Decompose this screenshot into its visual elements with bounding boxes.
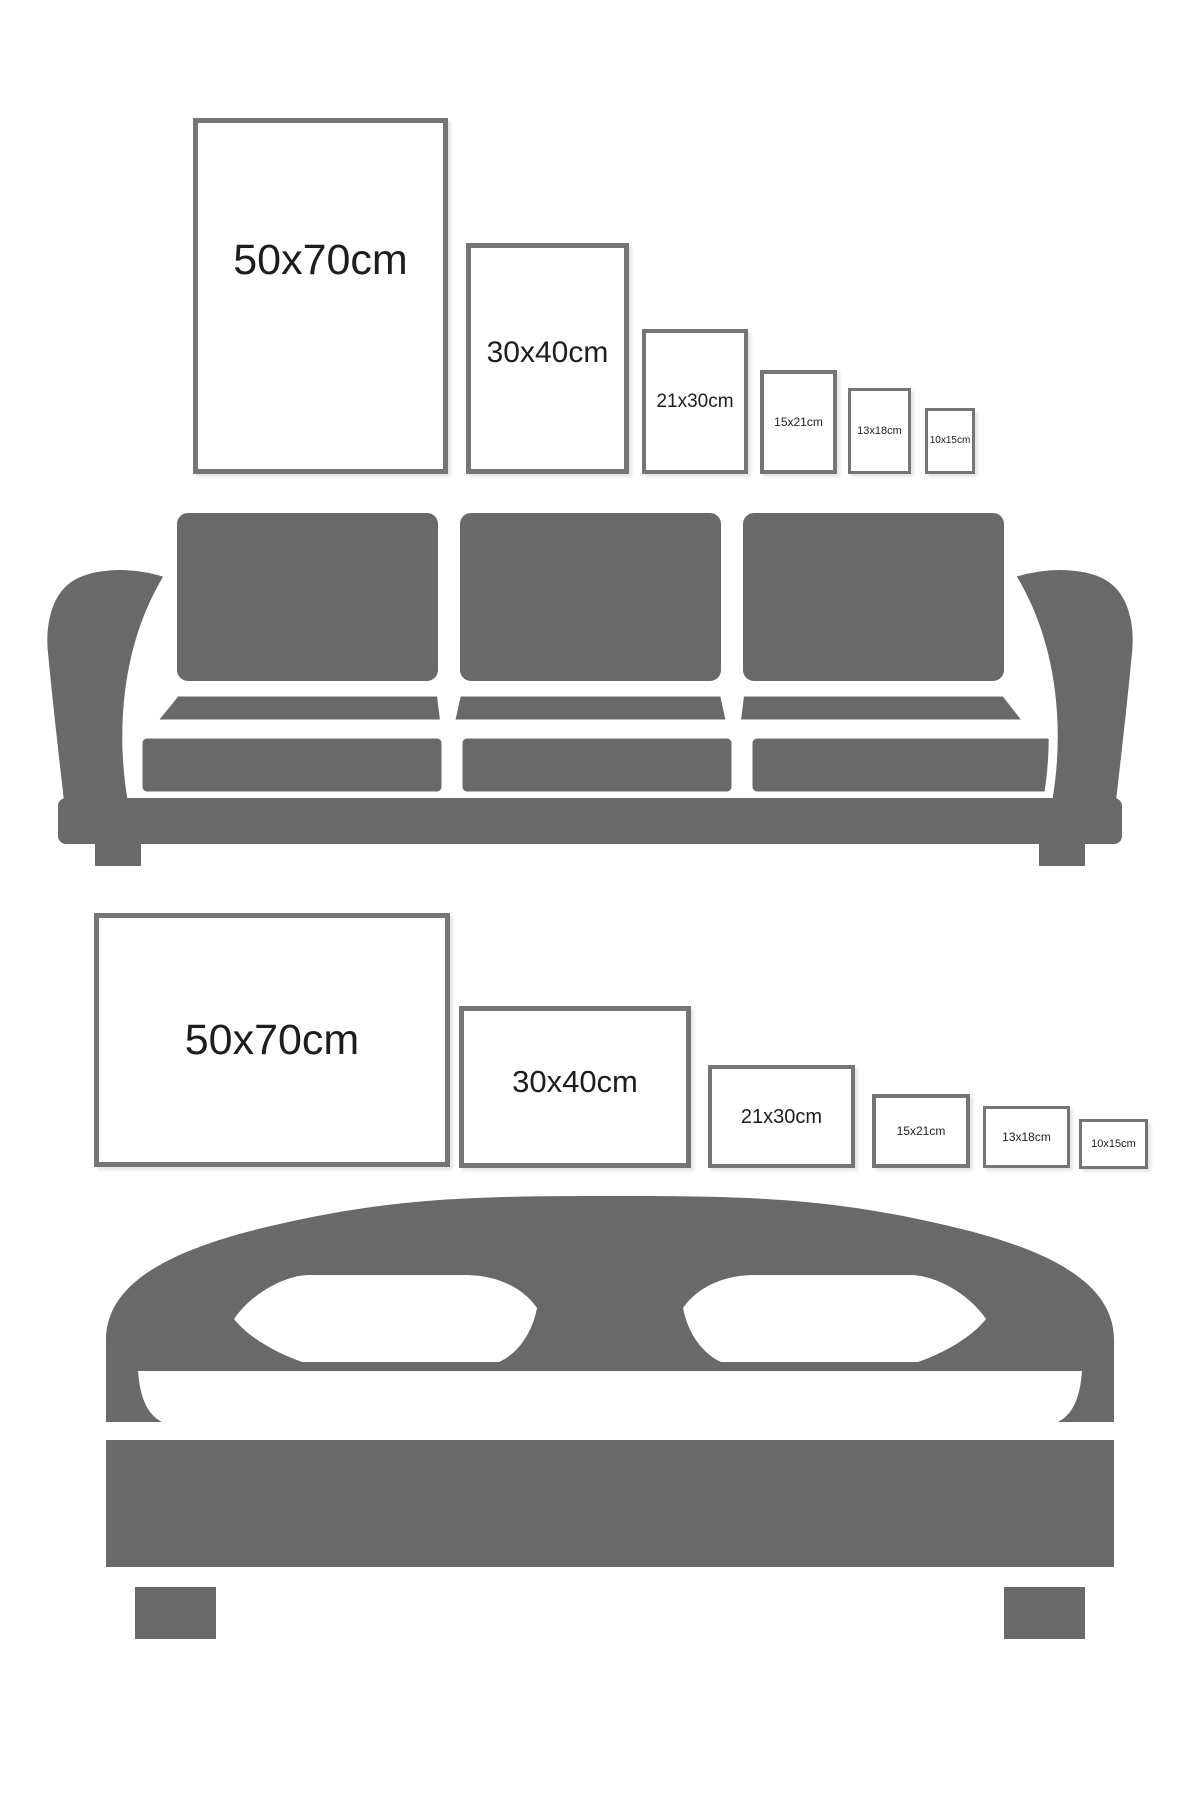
frame-21x30-portrait: 21x30cm bbox=[642, 329, 748, 474]
bed-pillow-right bbox=[683, 1275, 986, 1362]
frame-15x21-portrait: 15x21cm bbox=[760, 370, 837, 474]
frame-30x40-landscape: 30x40cm bbox=[459, 1006, 691, 1168]
frame-21x30-landscape: 21x30cm bbox=[708, 1065, 855, 1168]
bed-foot-right bbox=[1004, 1587, 1085, 1639]
frame-50x70-portrait: 50x70cm bbox=[193, 118, 448, 474]
frame-15x21-landscape: 15x21cm bbox=[872, 1094, 970, 1168]
frame-size-label: 50x70cm bbox=[233, 239, 407, 282]
sofa-seat-deck-middle bbox=[450, 692, 731, 724]
bed-mattress-corner-left bbox=[138, 1371, 162, 1422]
frame-10x15-portrait: 10x15cm bbox=[925, 408, 975, 474]
frame-10x15-landscape: 10x15cm bbox=[1079, 1119, 1148, 1169]
bed-base bbox=[106, 1440, 1114, 1567]
frame-50x70-landscape: 50x70cm bbox=[94, 913, 450, 1167]
bed-mattress-corner-right bbox=[1058, 1371, 1082, 1422]
frame-size-label: 50x70cm bbox=[185, 1019, 359, 1062]
sofa-seat-cushion-left bbox=[138, 734, 446, 796]
bed-pillow-left bbox=[234, 1275, 537, 1362]
sofa-back-cushion-middle bbox=[455, 508, 726, 686]
bed-foot-left bbox=[135, 1587, 216, 1639]
sofa-seat-cushion-right bbox=[748, 734, 1056, 796]
sofa-back-cushion-left bbox=[172, 508, 443, 686]
frame-size-label: 30x40cm bbox=[487, 338, 609, 368]
frame-size-label: 15x21cm bbox=[774, 416, 823, 428]
frame-13x18-landscape: 13x18cm bbox=[983, 1106, 1070, 1168]
frame-size-label: 21x30cm bbox=[656, 392, 733, 411]
frame-size-label: 13x18cm bbox=[857, 426, 902, 437]
sofa-back-cushion-right bbox=[738, 508, 1009, 686]
bed-illustration bbox=[0, 1185, 1200, 1805]
frame-size-label: 30x40cm bbox=[512, 1066, 638, 1097]
frame-size-label: 15x21cm bbox=[897, 1125, 946, 1137]
frame-size-label: 10x15cm bbox=[930, 436, 971, 446]
sofa-seat-cushion-middle bbox=[458, 734, 736, 796]
frame-13x18-portrait: 13x18cm bbox=[848, 388, 911, 474]
sofa-illustration bbox=[0, 470, 1200, 870]
sofa-base bbox=[58, 798, 1122, 844]
sofa-seat-deck-left bbox=[150, 692, 445, 724]
frame-size-label: 21x30cm bbox=[741, 1107, 822, 1127]
frame-size-label: 10x15cm bbox=[1091, 1139, 1136, 1150]
sofa-seat-deck-right bbox=[736, 692, 1030, 724]
sofa-foot-right bbox=[1039, 842, 1085, 866]
frame-size-label: 13x18cm bbox=[1002, 1131, 1051, 1143]
sofa-foot-left bbox=[95, 842, 141, 866]
frame-30x40-portrait: 30x40cm bbox=[466, 243, 629, 474]
